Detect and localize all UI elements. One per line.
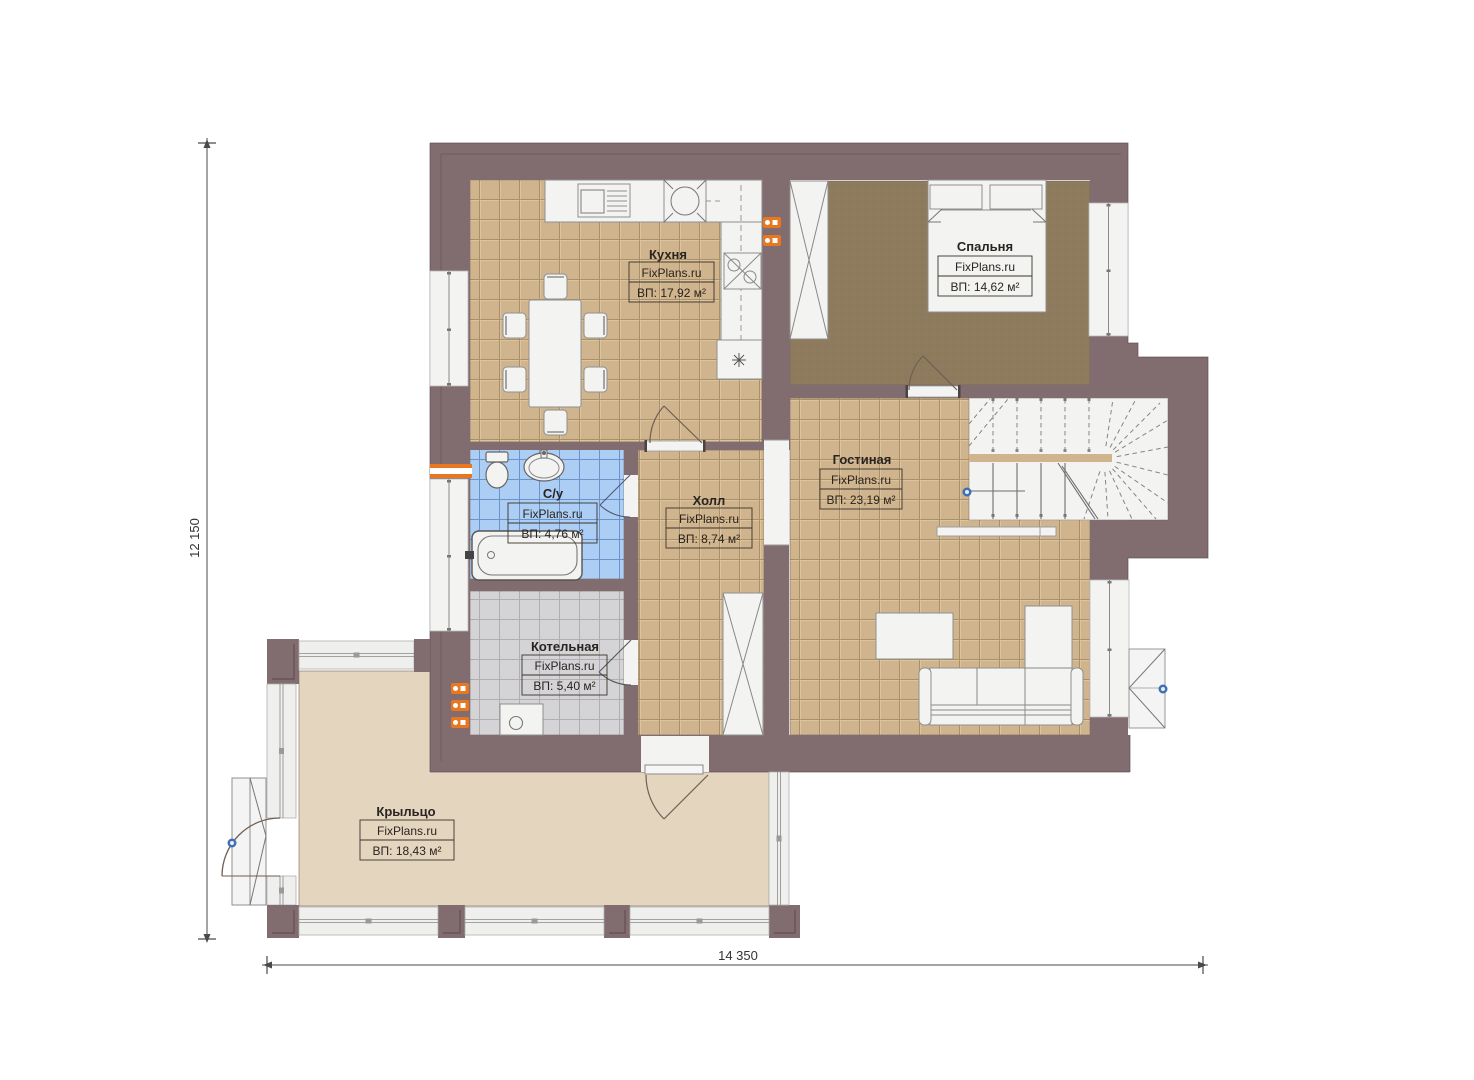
svg-text:FixPlans.ru: FixPlans.ru [955,260,1015,274]
svg-text:Гостиная: Гостиная [833,452,892,467]
svg-text:FixPlans.ru: FixPlans.ru [641,266,701,280]
svg-text:Холл: Холл [693,493,726,508]
svg-text:ВП: 4,76 м²: ВП: 4,76 м² [521,527,583,541]
svg-text:Кухня: Кухня [649,247,687,262]
svg-text:14 350: 14 350 [718,948,758,963]
svg-text:12 150: 12 150 [187,518,202,558]
svg-text:ВП: 17,92 м²: ВП: 17,92 м² [637,286,706,300]
svg-text:ВП: 23,19 м²: ВП: 23,19 м² [827,493,896,507]
svg-text:FixPlans.ru: FixPlans.ru [377,824,437,838]
svg-text:Котельная: Котельная [531,639,599,654]
svg-text:FixPlans.ru: FixPlans.ru [522,507,582,521]
svg-text:ВП: 18,43 м²: ВП: 18,43 м² [373,844,442,858]
svg-text:Крыльцо: Крыльцо [376,804,435,819]
svg-text:ВП: 5,40 м²: ВП: 5,40 м² [533,679,595,693]
svg-text:С/у: С/у [543,486,564,501]
svg-text:Спальня: Спальня [957,239,1013,254]
svg-text:FixPlans.ru: FixPlans.ru [679,512,739,526]
svg-text:ВП: 14,62 м²: ВП: 14,62 м² [951,280,1020,294]
svg-text:FixPlans.ru: FixPlans.ru [831,473,891,487]
svg-text:FixPlans.ru: FixPlans.ru [534,659,594,673]
svg-text:ВП: 8,74 м²: ВП: 8,74 м² [678,532,740,546]
